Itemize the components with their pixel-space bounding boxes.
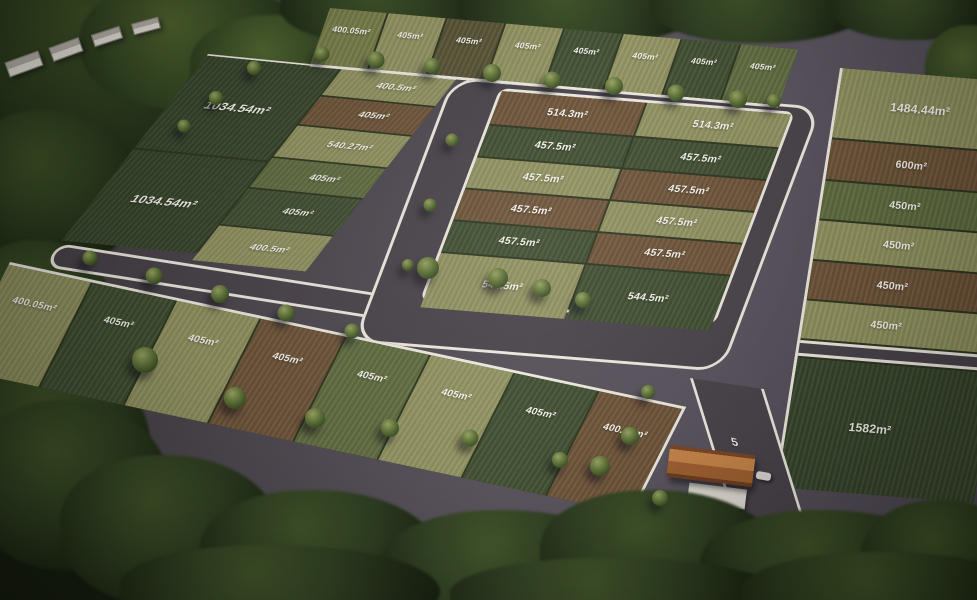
tree: [417, 257, 439, 279]
plot-area-label: 457.5m²: [642, 247, 687, 262]
plot-area-label: 405m²: [186, 333, 220, 349]
plot-area-label: 1034.54m²: [128, 192, 202, 210]
plot-area-label: 405m²: [523, 405, 557, 421]
tree: [641, 385, 655, 399]
tree: [247, 61, 261, 75]
tree: [575, 292, 591, 308]
tree: [132, 347, 158, 373]
plot-area-label: 405m²: [355, 369, 389, 385]
plot-area-label: 405m²: [101, 315, 135, 331]
plot-area-label: 1582m²: [848, 420, 893, 437]
tree: [652, 490, 668, 506]
plot-area-label: 405m²: [631, 51, 660, 63]
plot-area-label: 457.5m²: [509, 203, 554, 218]
tree: [209, 91, 223, 105]
tree: [590, 456, 610, 476]
tree: [83, 251, 98, 266]
subdivision-aerial-render: 1034.54m²1034.54m² 400.5m²405m²540.27m²4…: [0, 0, 977, 600]
tree: [729, 90, 747, 108]
plot-area-label: 457.5m²: [678, 151, 723, 166]
tree: [315, 47, 330, 62]
plot-area-label: 457.5m²: [497, 235, 542, 250]
tree: [533, 279, 551, 297]
road-marking-numeral: 5: [730, 435, 740, 450]
plot-area-label: 450m²: [870, 318, 903, 332]
tree: [211, 285, 229, 303]
plot-area-label: 405m²: [748, 61, 777, 73]
plot-area-label: 405m²: [280, 207, 317, 219]
tree: [402, 259, 414, 271]
tree: [552, 452, 568, 468]
plot-area-label: 457.5m²: [666, 183, 711, 198]
plot-area-label: 400.5m²: [373, 82, 418, 94]
plot-area-label: 1484.44m²: [889, 100, 951, 119]
tree: [621, 427, 639, 445]
tree: [424, 199, 437, 212]
plot-area-label: 600m²: [895, 159, 928, 173]
plot-area-label: 405m²: [396, 30, 425, 42]
plot-area-label: 400.05m²: [331, 24, 372, 37]
plot-area-label: 405m²: [270, 351, 304, 367]
tree: [483, 64, 501, 82]
plot-area-label: 514.3m²: [691, 118, 736, 133]
tree: [146, 268, 163, 285]
plot-area-label: 514.3m²: [545, 106, 590, 121]
tree: [446, 134, 459, 147]
plot-area-label: 450m²: [882, 239, 915, 253]
plot-area-label: 405m²: [455, 35, 484, 47]
tree: [381, 419, 399, 437]
plot-area-label: 457.5m²: [521, 171, 566, 186]
tree: [368, 52, 385, 69]
tree: [178, 120, 191, 133]
plot-area-label: 457.5m²: [533, 140, 578, 155]
tree: [462, 430, 479, 447]
tree: [345, 324, 360, 339]
plot-area-label: 450m²: [876, 279, 909, 293]
tree: [767, 94, 781, 108]
tree: [544, 72, 561, 89]
plot-area-label: 405m²: [572, 45, 601, 57]
plot-area-label: 544.5m²: [626, 291, 671, 306]
tree: [668, 85, 685, 102]
plot-area-label: 540.27m²: [324, 141, 375, 154]
tree: [488, 268, 508, 288]
plot-area-label: 405m²: [306, 173, 343, 185]
tree: [605, 77, 623, 95]
plot-area-label: 400.5m²: [247, 243, 292, 255]
plot-area-label: 457.5m²: [654, 215, 699, 230]
tree: [305, 408, 325, 428]
plot-area-label: 405m²: [439, 387, 473, 403]
tree: [424, 58, 440, 74]
plot-area-label: 450m²: [888, 199, 921, 213]
plot-area-label: 405m²: [513, 40, 542, 52]
plot-area-label: 400.05m²: [10, 295, 58, 314]
plot: 1582m²: [777, 357, 977, 503]
plot-area-label: 405m²: [355, 110, 392, 122]
tree: [224, 387, 246, 409]
tree: [278, 305, 295, 322]
plot-area-label: 405m²: [690, 56, 719, 68]
